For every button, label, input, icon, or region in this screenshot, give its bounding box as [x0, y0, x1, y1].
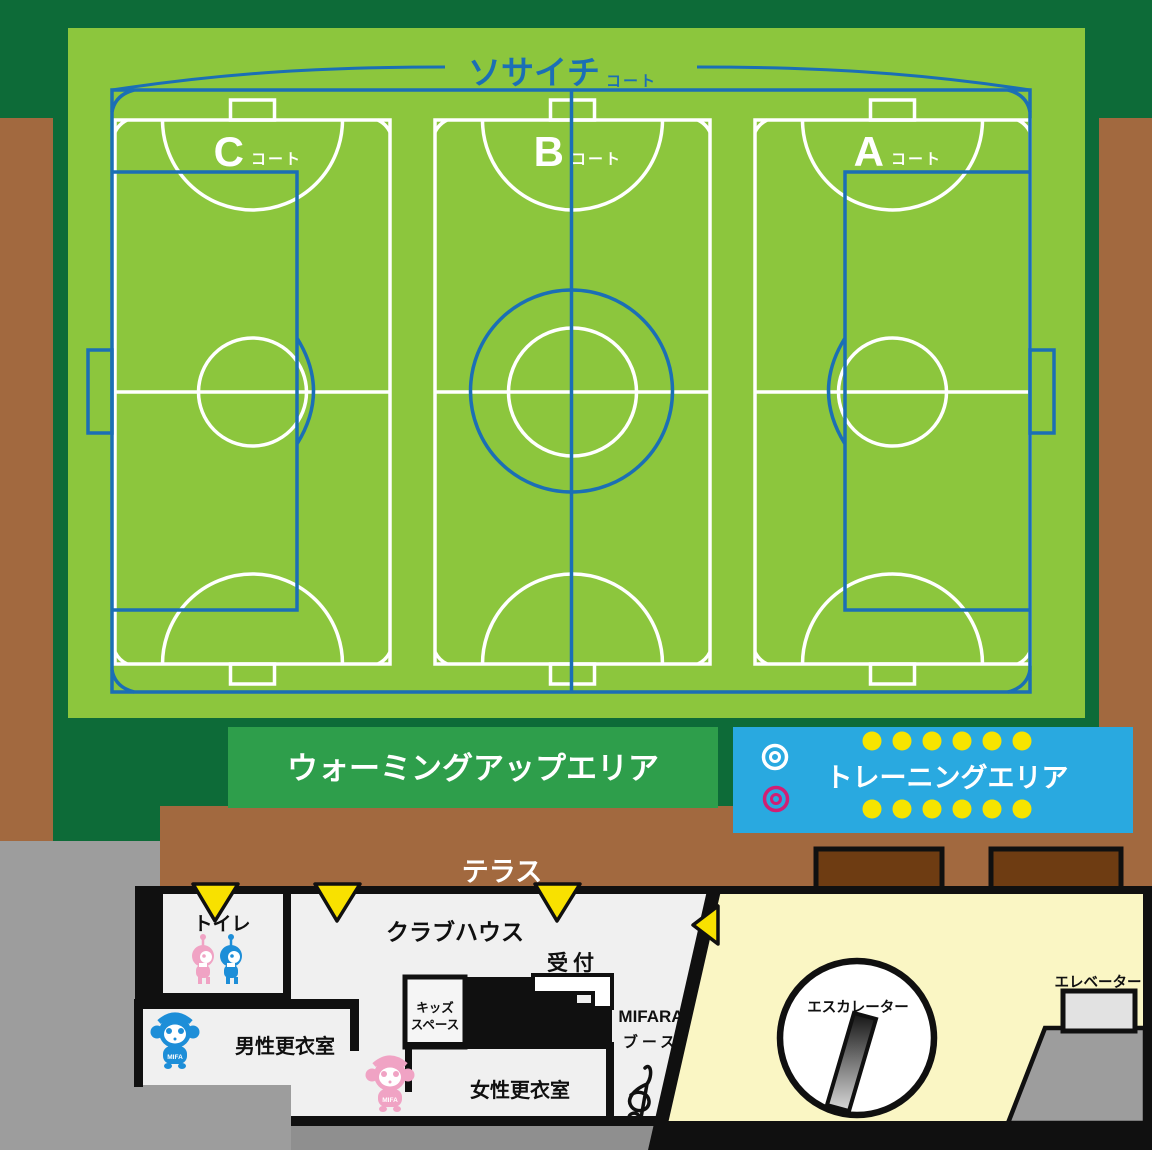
side-strip-left — [0, 118, 53, 841]
training-label: トレーニングエリア — [826, 762, 1069, 793]
womens-room-right-wall — [606, 1042, 614, 1123]
toilet-label: トイレ — [193, 914, 250, 935]
mens-room-label: 男性更衣室 — [235, 1034, 335, 1058]
reception-label: 受付 — [547, 951, 599, 975]
pitch-title-suffix: コート — [606, 73, 657, 90]
womens-room-label: 女性更衣室 — [470, 1078, 570, 1102]
mens-room-left-wall — [134, 999, 143, 1087]
mascot-womens-label: MIFA — [382, 1097, 398, 1104]
toilet-right-wall — [283, 886, 291, 1000]
womens-room-top-wall — [405, 1042, 613, 1049]
escalator-label: エスカレーター — [807, 999, 909, 1016]
building-bottom-wall — [291, 1116, 663, 1126]
kids-space-label-line2: スペース — [411, 1018, 460, 1032]
pitch-title: ソサイチ — [468, 54, 600, 91]
facility-map: ソサイチ コート C コート B コート A コート ウォーミングアップエリア … — [0, 0, 1152, 1150]
court-b-label: B — [534, 128, 564, 175]
right-wall — [1143, 886, 1152, 1126]
elevator-box — [1063, 991, 1135, 1031]
court-a-label: A — [854, 128, 884, 175]
kids-space-label-line1: キッズ — [416, 1000, 454, 1015]
court-b-label-suffix: コート — [571, 151, 622, 168]
terrace-label: テラス — [462, 857, 542, 887]
escalator-icon: エスカレーター — [780, 961, 934, 1115]
court-a-label-suffix: コート — [891, 151, 942, 168]
womens-room-left-wall — [405, 1042, 412, 1092]
booth-label-line1: MIFARA — [618, 1007, 683, 1026]
training-area: トレーニングエリア — [733, 727, 1133, 833]
elevator-label: エレベーター — [1055, 974, 1142, 991]
booth-label-line2: ブース — [623, 1033, 679, 1051]
clubhouse-label: クラブハウス — [386, 919, 524, 945]
warming-up-label: ウォーミングアップエリア — [287, 751, 659, 786]
mascot-mens-label: MIFA — [167, 1054, 183, 1061]
court-c-label-suffix: コート — [251, 151, 302, 168]
wall-left-column — [135, 886, 163, 1008]
bottom-wall-right — [655, 1121, 1152, 1150]
mens-room-top-wall — [134, 999, 359, 1009]
bottom-strip — [291, 1126, 663, 1150]
court-c-label: C — [214, 128, 244, 175]
mens-room-right-wall — [350, 999, 359, 1051]
